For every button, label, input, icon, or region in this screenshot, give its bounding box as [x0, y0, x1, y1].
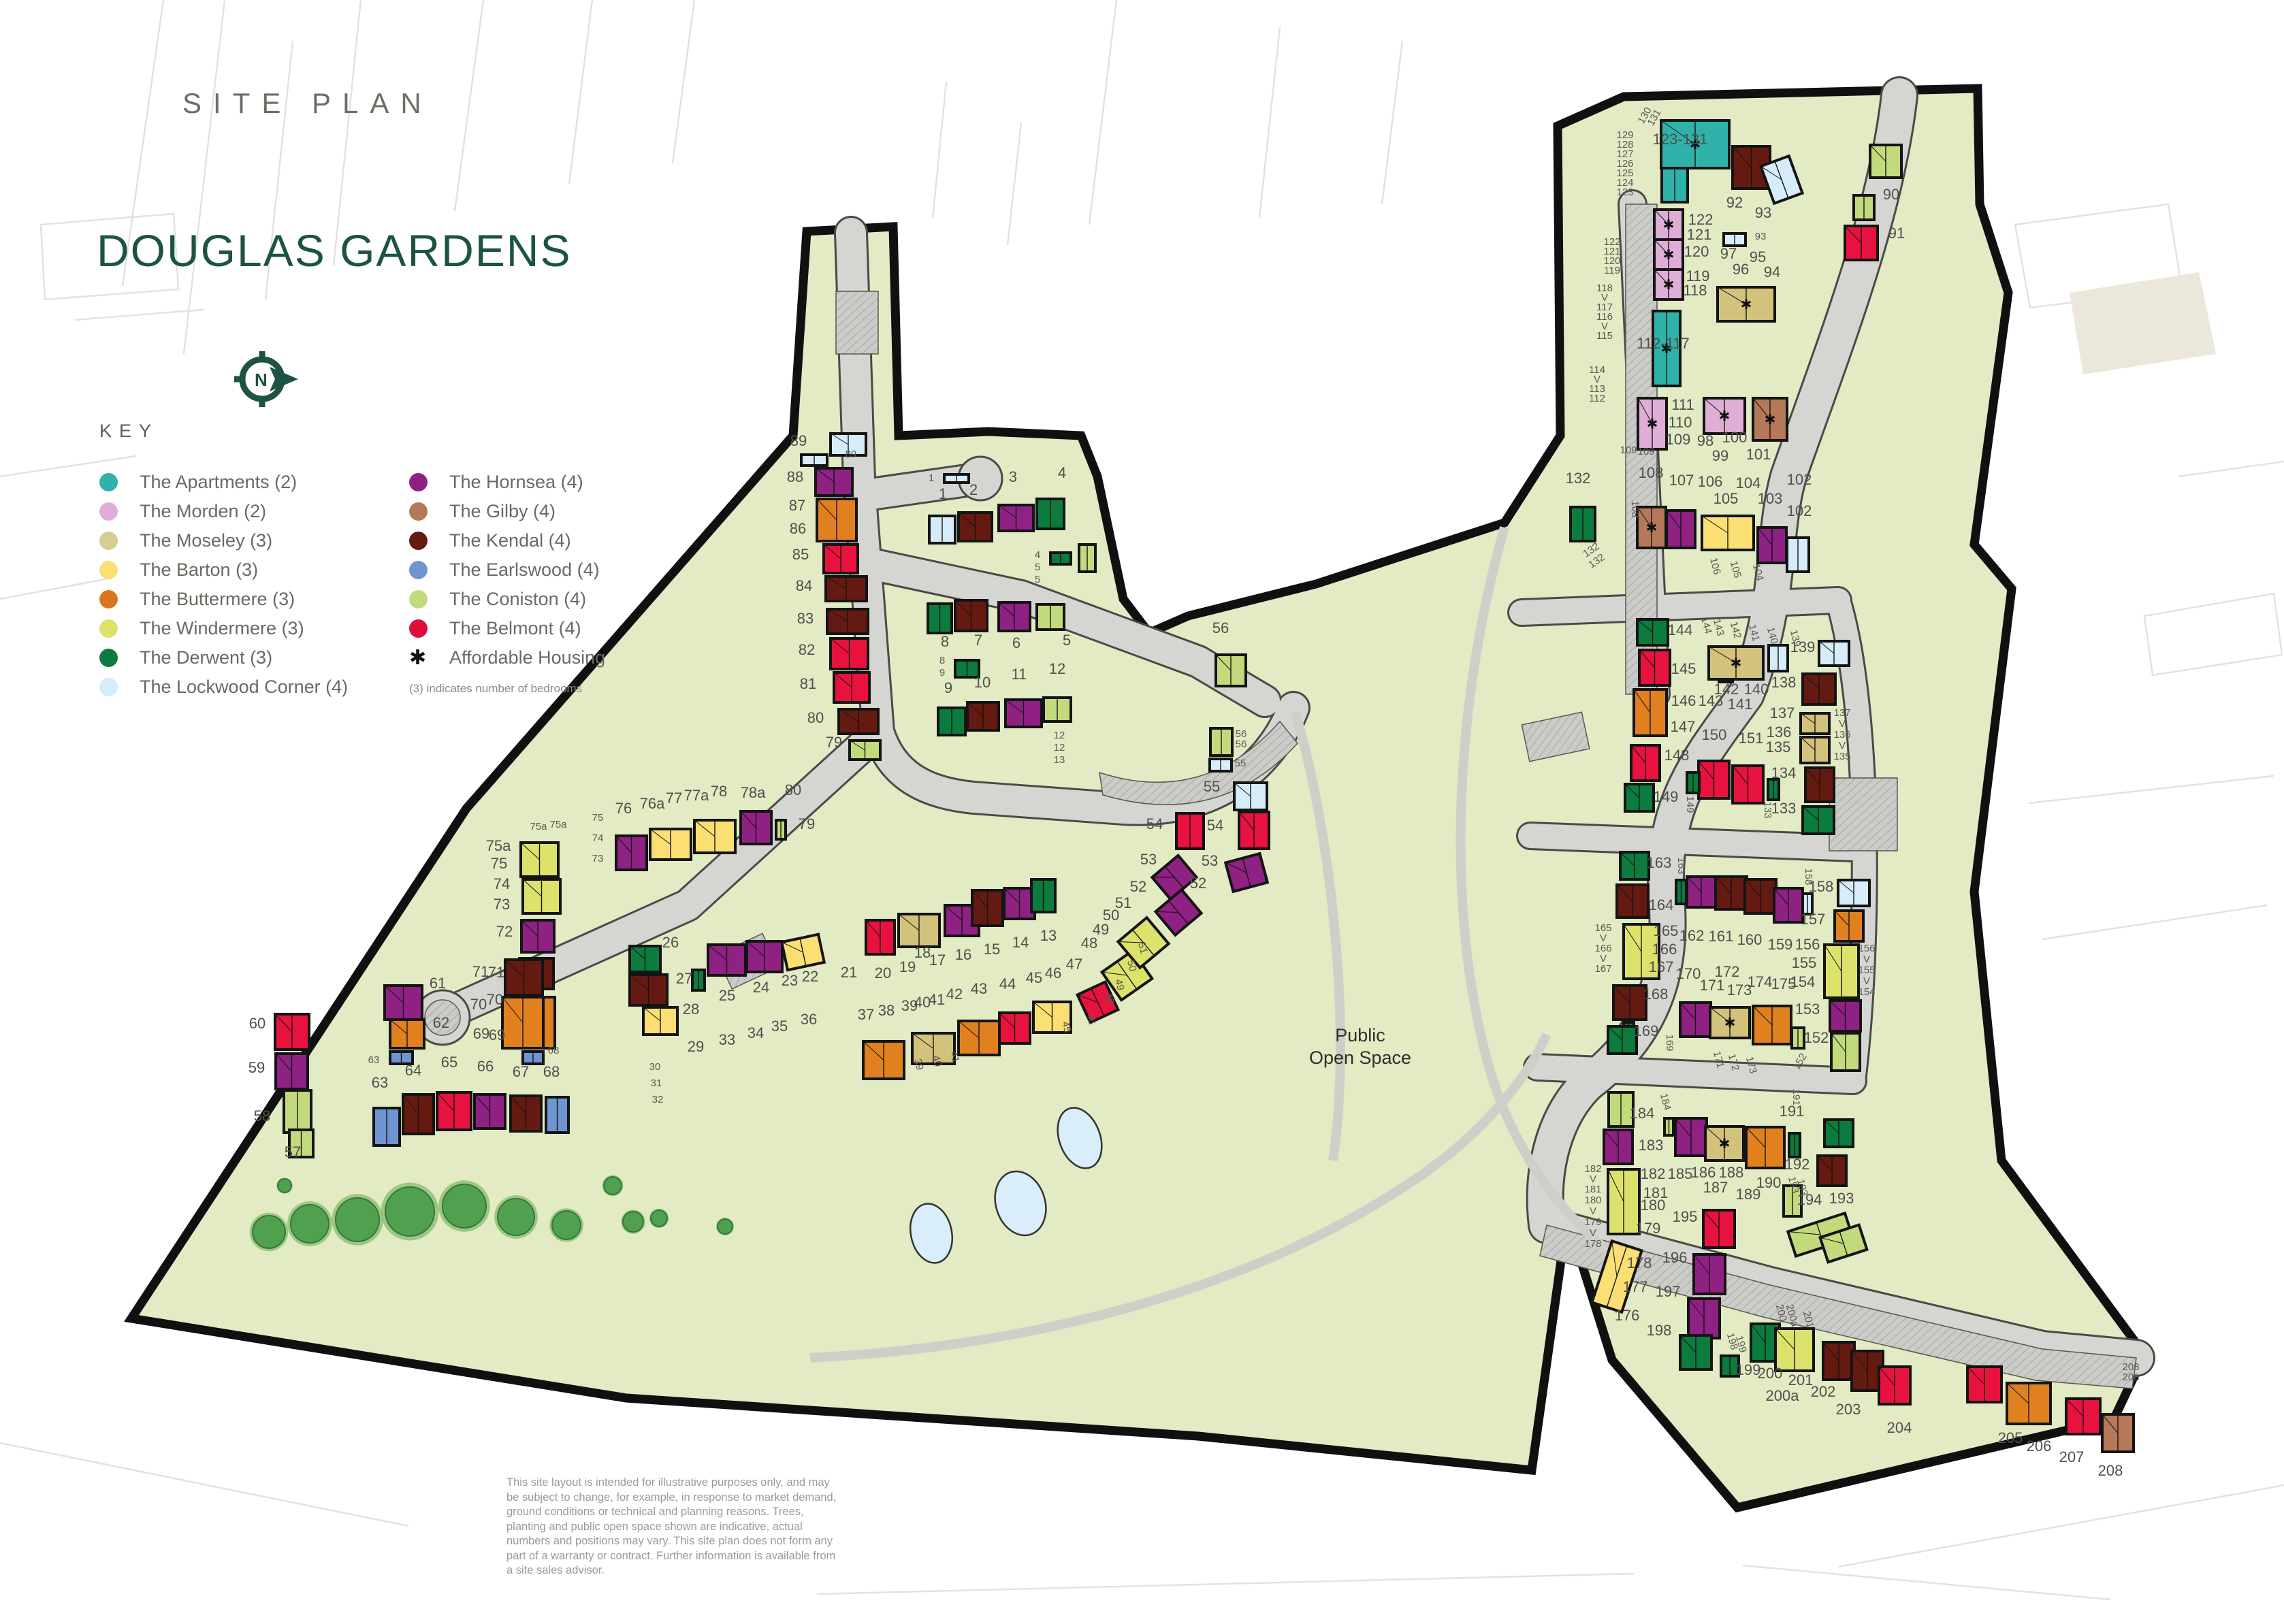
plot-number-label: 21 [841, 964, 857, 981]
plot-number-label: 118 [1683, 282, 1707, 299]
house-lockwood [929, 516, 955, 543]
plot-number-label: 73 [494, 896, 510, 913]
house-type-swatch [99, 473, 118, 491]
plot-number-label: 150 [1702, 726, 1727, 743]
plot-number-label: 63 [368, 1054, 380, 1066]
house-type-swatch [409, 561, 428, 579]
house-hornsea [708, 945, 745, 975]
plot-number-label: 85 [792, 546, 809, 563]
key-item: The Earlswood (4) [409, 555, 605, 585]
plot-number-label: 154 [1858, 986, 1875, 998]
affordable-housing-icon: ✱ [409, 649, 428, 667]
plot-number-label: 52 [1130, 878, 1146, 895]
house-coniston [1079, 545, 1095, 572]
house-derwent [1676, 880, 1686, 904]
key-item: The Kendal (4) [409, 526, 605, 555]
plot-number-label: 42 [946, 986, 963, 1003]
plot-number-label: 1 [929, 472, 934, 484]
plot-number-label: 25 [719, 987, 735, 1004]
house-kendal [1803, 674, 1835, 704]
plot-number-label: 68 [543, 1063, 560, 1080]
plot-number-label: 93 [1755, 231, 1767, 242]
plot-number-label: V [1601, 292, 1608, 304]
plot-number-label: 80 [785, 781, 801, 798]
plot-number-label: 156 [1795, 936, 1820, 953]
key-item-label: The Hornsea (4) [449, 472, 583, 493]
house-coniston [1037, 604, 1064, 630]
plot-number-label: 75 [592, 812, 604, 824]
plot-number-label: 164 [1649, 896, 1674, 913]
plot-number-label: 78a [741, 784, 766, 801]
key-item-label: The Barton (3) [140, 559, 258, 581]
plot-number-label: 120 [1684, 243, 1709, 260]
key-item: The Derwent (3) [99, 643, 409, 672]
house-kendal [505, 960, 543, 995]
key-item: The Belmont (4) [409, 614, 605, 643]
plot-number-label: 65 [441, 1054, 457, 1071]
plot-number-label: 61 [430, 975, 446, 992]
plot-number-label: 13 [1054, 754, 1065, 766]
plot-number-label: 93 [1755, 204, 1771, 221]
plot-number-label: 89 [846, 449, 857, 460]
house-coniston [850, 741, 880, 760]
plot-number-label: 208 [2098, 1462, 2123, 1479]
plot-number-label: 11 [1012, 666, 1027, 683]
plot-number-label: 12 [1054, 742, 1065, 753]
house-coniston [1870, 145, 1901, 178]
plot-number-label: 44 [999, 975, 1016, 992]
plot-number-label: 5 [1035, 574, 1040, 585]
plot-number-label: 63 [372, 1074, 388, 1091]
compass-north-label: N [255, 370, 268, 390]
plot-number-label: 203 [1836, 1401, 1861, 1418]
plot-number-label: 133 [1762, 801, 1773, 818]
plot-number-label: 104 [1736, 474, 1761, 491]
plot-number-label: 178 [1627, 1254, 1652, 1271]
plot-number-label: 60 [249, 1015, 266, 1032]
plot-number-label: 76 [615, 800, 632, 817]
plot-number-label: 160 [1737, 931, 1763, 948]
plot-number-label: 88 [787, 468, 803, 485]
house-kendal [972, 890, 1003, 926]
plot-number-label: 163 [1647, 854, 1672, 871]
plot-number-label: 30 [649, 1061, 661, 1073]
plot-number-label: 192 [1785, 1156, 1810, 1173]
plot-number-label: 166 [1652, 941, 1677, 958]
house-type-swatch [99, 678, 118, 696]
page-title: SITE PLAN [182, 87, 433, 120]
house-windermere [1608, 1169, 1639, 1234]
plot-number-label: 109 [1637, 446, 1654, 457]
house-belmont [1845, 226, 1878, 260]
house-kendal [630, 975, 667, 1005]
house-morden: ✱ [1638, 398, 1667, 449]
house-belmont [866, 920, 895, 954]
house-kendal [967, 702, 999, 730]
house-windermere [1824, 945, 1859, 998]
house-morden: ✱ [1654, 210, 1683, 240]
plot-number-label: 146 [1671, 692, 1696, 709]
plot-number-label: 55 [1235, 758, 1246, 769]
plot-number-label: 73 [592, 853, 604, 864]
plot-number-label: 18 [914, 944, 931, 961]
house-type-swatch [409, 473, 428, 491]
plot-number-label: 179 [1584, 1216, 1601, 1228]
plot-number-label: 98 [1697, 432, 1714, 449]
house-buttermere [817, 499, 856, 541]
plot-number-label: 75 [491, 855, 507, 872]
house-type-swatch [99, 561, 118, 579]
house-moseley [1801, 737, 1829, 763]
plot-number-label: 121 [1687, 226, 1712, 243]
plot-number-label: 201 [1788, 1371, 1814, 1388]
plot-number-label: 28 [683, 1001, 699, 1018]
plot-number-label: 162 [1679, 927, 1705, 944]
house-lockwood [1819, 641, 1849, 666]
house-type-swatch [99, 649, 118, 667]
plot-number-label: 169 [1664, 1034, 1675, 1051]
plot-number-label: 26 [662, 934, 679, 951]
plot-number-label: 22 [802, 968, 818, 985]
house-coniston [1831, 1033, 1860, 1071]
plot-number-label: 167 [1594, 963, 1611, 975]
house-coniston [1664, 1118, 1673, 1135]
plot-number-label: 68 [548, 1045, 560, 1056]
house-barton [1702, 516, 1754, 550]
plot-number-label: 123-131 [1653, 131, 1708, 148]
house-buttermere [1746, 1127, 1784, 1168]
plot-number-label: 174 [1748, 973, 1773, 990]
plot-number-label: 175 [1771, 975, 1797, 992]
affordable-housing-marker: ✱ [1741, 297, 1752, 312]
plot-number-label: 112 [1589, 393, 1605, 404]
house-belmont [1239, 812, 1269, 849]
house-type-swatch [99, 619, 118, 638]
plot-number-label: 133 [1771, 800, 1797, 817]
plot-number-label: 177 [1623, 1278, 1648, 1295]
plot-number-label: 155 [1858, 964, 1875, 976]
plot-number-label: 32 [652, 1094, 664, 1105]
house-kendal [1617, 885, 1648, 917]
plot-number-label: 123 [1616, 186, 1633, 198]
house-hornsea [816, 468, 852, 496]
house-belmont [1631, 745, 1660, 781]
plot-number-label: 103 [1758, 490, 1783, 507]
plot-number-label: 24 [753, 979, 769, 996]
affordable-housing-marker: ✱ [1724, 1016, 1736, 1031]
plot-number-label: V [1600, 953, 1607, 964]
plot-number-label: 7 [974, 632, 982, 649]
house-earlswood [546, 1097, 568, 1133]
plot-number-label: 84 [796, 577, 812, 594]
tree-icon [336, 1198, 379, 1241]
plot-number-label: 78 [711, 783, 727, 800]
house-lockwood [1234, 783, 1267, 810]
plot-number-label: 70 [470, 996, 487, 1013]
plot-number-label: 33 [719, 1031, 735, 1048]
house-hornsea [999, 505, 1033, 531]
plot-number-label: 64 [405, 1062, 421, 1079]
key-item-label: The Coniston (4) [449, 589, 586, 610]
house-coniston [1792, 1028, 1804, 1048]
plot-number-label: 134 [1771, 764, 1797, 781]
house-lockwood [1724, 233, 1746, 246]
tree-icon [385, 1187, 434, 1236]
plot-number-label: V [1601, 321, 1608, 332]
house-belmont [1639, 650, 1670, 685]
key-item-label: The Earlswood (4) [449, 559, 600, 581]
house-type-swatch [99, 590, 118, 608]
plot-number-label: 149 [1654, 788, 1679, 805]
plot-number-label: 191 [1790, 1088, 1802, 1105]
house-type-swatch [409, 532, 428, 550]
plot-number-label: 52 [1190, 875, 1206, 892]
plot-number-label: 180 [1641, 1197, 1666, 1214]
plot-number-label: 151 [1739, 730, 1764, 747]
plot-number-label: 2 [969, 481, 978, 498]
plot-number-label: 76a [640, 795, 665, 812]
plot-number-label: 72 [496, 923, 513, 940]
plot-number-label: 38 [878, 1002, 895, 1019]
plot-number-label: 152 [1804, 1029, 1829, 1046]
house-hornsea [1830, 1001, 1861, 1031]
key-item: The Hornsea (4) [409, 468, 605, 497]
plot-number-label: 140 [1744, 681, 1769, 698]
plot-number-label: 87 [789, 497, 805, 514]
tree-icon [291, 1205, 329, 1243]
house-buttermere [1753, 1006, 1791, 1044]
key-item-label: The Lockwood Corner (4) [140, 677, 348, 698]
key-item: The Lockwood Corner (4) [99, 672, 409, 702]
plot-number-label: 79 [826, 734, 842, 751]
house-derwent [1680, 1335, 1711, 1369]
house-gilby [2102, 1414, 2134, 1452]
plot-number-label: 79 [799, 815, 815, 832]
plot-number-label: 179 [1636, 1220, 1661, 1237]
house-gilby: ✱ [1637, 507, 1666, 548]
plot-number-label: 190 [1756, 1174, 1782, 1191]
plot-number-label: 110 [1668, 414, 1692, 431]
house-belmont [831, 638, 868, 669]
plot-number-label: V [1839, 718, 1846, 730]
plot-number-label: 183 [1639, 1137, 1664, 1154]
house-buttermere [1835, 911, 1863, 941]
house-kendal [403, 1094, 434, 1134]
house-windermere [523, 879, 560, 913]
house-kendal [1823, 1342, 1854, 1380]
house-earlswood [523, 1052, 543, 1064]
plot-number-label: 31 [651, 1077, 662, 1089]
plot-number-label: 4 [1058, 464, 1066, 481]
plot-number-label: 16 [955, 946, 971, 963]
disclaimer-text: This site layout is intended for illustr… [506, 1476, 837, 1578]
plot-number-label: 69 [489, 1026, 505, 1043]
house-belmont [2066, 1399, 2100, 1434]
plot-number-label: 187 [1703, 1179, 1728, 1196]
house-hornsea [616, 836, 647, 870]
plot-number-label: 54 [1146, 815, 1163, 832]
house-coniston [1210, 728, 1232, 756]
house-barton [643, 1007, 677, 1035]
house-hornsea [1675, 1118, 1707, 1156]
plot-number-label: 83 [797, 610, 814, 627]
development-name: DOUGLAS GARDENS [97, 225, 571, 276]
house-windermere [521, 843, 558, 877]
plot-number-label: 176 [1615, 1307, 1640, 1324]
plot-number-label: 10 [974, 674, 991, 691]
plot-number-label: 6 [1012, 634, 1020, 651]
plot-number-label: 77a [684, 787, 709, 804]
plot-number-label: 69 [473, 1025, 489, 1042]
plot-number-label: 144 [1668, 621, 1693, 638]
house-type-swatch [409, 590, 428, 608]
house-kendal [1818, 1156, 1846, 1186]
house-type-swatch [99, 502, 118, 521]
plot-number-label: V [1590, 1205, 1596, 1217]
plot-number-label: 75a [530, 821, 547, 832]
house-hornsea [1694, 1254, 1725, 1294]
plot-number-label: 74 [494, 875, 510, 892]
plot-number-label: 82 [799, 641, 815, 658]
house-moseley: ✱ [1710, 1007, 1750, 1038]
plot-number-label: 109 [1666, 431, 1691, 448]
plot-number-label: 36 [801, 1011, 817, 1028]
house-derwent [928, 604, 952, 633]
plot-number-label: 158 [1803, 868, 1814, 885]
plot-number-label: 9 [939, 667, 945, 679]
plot-number-label: 13 [1040, 927, 1057, 944]
tree-icon [443, 1184, 486, 1228]
plot-number-label: 37 [858, 1006, 874, 1023]
plot-number-label: 5 [1035, 562, 1040, 573]
key-item: The Gilby (4) [409, 497, 605, 526]
plot-number-label: 96 [1733, 261, 1749, 278]
affordable-housing-marker: ✱ [1731, 656, 1742, 671]
house-derwent [1789, 1133, 1800, 1157]
house-lockwood [1787, 538, 1809, 572]
key-item: The Morden (2) [99, 497, 409, 526]
house-hornsea [1680, 1003, 1711, 1037]
house-morden: ✱ [1654, 270, 1683, 299]
plot-number-label: 57 [285, 1143, 301, 1160]
plot-number-label: 156 [1858, 943, 1875, 954]
house-hornsea [521, 920, 554, 952]
plot-number-label: V [1594, 374, 1601, 385]
house-lockwood [1838, 880, 1869, 906]
tree-icon [623, 1212, 643, 1232]
key-item: The Moseley (3) [99, 526, 409, 555]
plot-number-label: 135 [1766, 738, 1791, 756]
house-derwent [1637, 619, 1668, 645]
affordable-housing-marker: ✱ [1663, 218, 1675, 233]
plot-number-label: 34 [747, 1024, 764, 1041]
key-item-label: The Gilby (4) [449, 501, 556, 522]
key-item: The Windermere (3) [99, 614, 409, 643]
house-belmont [1967, 1367, 2001, 1402]
plot-number-label: 91 [1888, 225, 1905, 242]
key-item-label: The Belmont (4) [449, 618, 581, 639]
house-buttermere [390, 1020, 424, 1048]
house-hornsea [276, 1054, 308, 1089]
house-belmont [275, 1014, 309, 1050]
house-belmont [1879, 1367, 1910, 1404]
house-derwent [630, 946, 660, 972]
house-belmont [824, 545, 858, 573]
affordable-housing-marker: ✱ [1719, 1137, 1731, 1152]
plot-number-label: 89 [790, 432, 807, 449]
plot-number-label: 157 [1801, 911, 1826, 928]
plot-number-label: 45 [1026, 969, 1042, 986]
house-kendal [839, 709, 878, 734]
house-kendal [826, 576, 867, 601]
plot-number-label: 193 [1829, 1190, 1854, 1207]
plot-number-label: 137 [1770, 704, 1795, 721]
key-footnote: (3) indicates number of bedrooms [409, 682, 605, 696]
plot-number-label: 94 [1764, 263, 1780, 280]
plot-number-label: 71 [472, 963, 489, 980]
plot-number-label: 29 [688, 1038, 704, 1055]
house-hornsea [1687, 877, 1716, 907]
key-item: The Apartments (2) [99, 468, 409, 497]
offsite-building-block [2070, 272, 2216, 374]
plot-number-label: 8 [941, 633, 949, 650]
plot-number-label: 1 [939, 485, 947, 502]
plot-number-label: 109 [1620, 444, 1637, 456]
plot-number-label: 165 [1654, 922, 1679, 939]
house-belmont [1699, 761, 1729, 798]
house-kendal [827, 609, 868, 634]
plot-number-label: 145 [1671, 660, 1696, 677]
house-hornsea [1688, 1299, 1720, 1338]
plot-number-label: 14 [1012, 934, 1029, 951]
house-earlswood [374, 1108, 400, 1146]
house-moseley [1801, 713, 1829, 734]
tree-icon [718, 1219, 733, 1234]
key-item: The Barton (3) [99, 555, 409, 585]
house-type-swatch [99, 532, 118, 550]
plot-number-label: 53 [1140, 851, 1157, 868]
plot-number-label: 170 [1676, 965, 1701, 982]
key-item-label: The Moseley (3) [140, 530, 272, 551]
plot-number-label: 119 [1604, 265, 1620, 276]
plot-number-label: 181 [1584, 1184, 1601, 1195]
plot-number-label: 196 [1662, 1249, 1688, 1266]
plot-number-label: 15 [984, 941, 1000, 958]
north-compass-icon: N [234, 351, 298, 407]
key-column-2: The Hornsea (4)The Gilby (4)The Kendal (… [409, 468, 605, 702]
house-derwent [1824, 1120, 1853, 1147]
house-coniston [284, 1090, 311, 1133]
plot-number-label: 138 [1771, 674, 1797, 691]
plot-number-label: 135 [1833, 751, 1850, 762]
key-item-label: The Derwent (3) [140, 647, 272, 668]
plot-number-label: V [1863, 975, 1870, 987]
house-belmont [1176, 813, 1204, 849]
plot-number-label: 161 [1709, 928, 1734, 945]
house-kendal [955, 600, 987, 631]
plot-number-label: 108 [1629, 500, 1641, 517]
plot-number-label: 172 [1715, 963, 1740, 980]
house-moseley: ✱ [1705, 1126, 1743, 1160]
tree-icon [498, 1199, 534, 1235]
house-kendal [1745, 879, 1776, 913]
house-hornsea [999, 602, 1030, 631]
plot-number-label: 66 [477, 1058, 494, 1075]
key-item: The Buttermere (3) [99, 585, 409, 614]
house-kendal [1805, 768, 1834, 802]
plot-number-label: 74 [592, 832, 604, 844]
plot-number-label: 155 [1792, 954, 1817, 971]
